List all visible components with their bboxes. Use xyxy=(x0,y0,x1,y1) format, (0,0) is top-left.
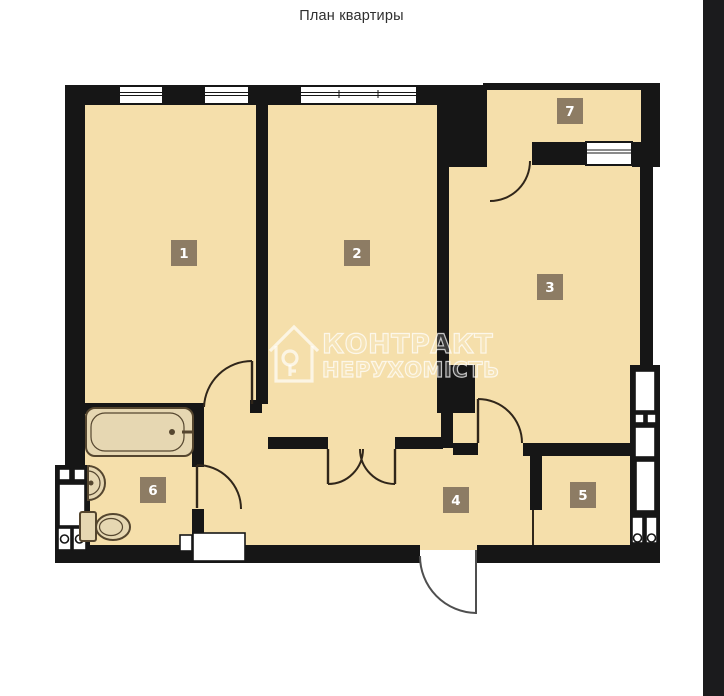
svg-text:1: 1 xyxy=(179,246,188,262)
room-label-6: 6 xyxy=(140,477,166,503)
room-label-4: 4 xyxy=(443,487,469,513)
svg-text:7: 7 xyxy=(565,104,574,120)
window xyxy=(119,86,163,104)
wall-segment xyxy=(249,85,300,105)
room-label-1: 1 xyxy=(171,240,197,266)
svg-text:3: 3 xyxy=(545,280,554,296)
screenshot-page: План квартиры xyxy=(0,0,724,696)
floor-plan: 1 2 3 4 5 6 7 xyxy=(0,0,724,696)
room3-bottom-wall xyxy=(453,443,478,455)
svg-text:6: 6 xyxy=(148,483,157,499)
photo-edge-strip xyxy=(703,0,724,696)
niche-box xyxy=(180,535,192,551)
shaft-box xyxy=(635,371,655,411)
svg-text:4: 4 xyxy=(451,493,460,509)
wall-segment xyxy=(632,142,660,167)
room5-partition xyxy=(530,452,542,510)
wall-segment xyxy=(441,413,453,448)
room-label-3: 3 xyxy=(537,274,563,300)
bottom-wall xyxy=(477,545,660,563)
shaft-box xyxy=(74,469,85,480)
shaft-box xyxy=(635,427,655,457)
shaft-box xyxy=(59,469,70,480)
shaft-box xyxy=(635,414,644,423)
wall-segment xyxy=(437,105,487,167)
room2-bottom-wall xyxy=(268,437,328,449)
room1-room2-wall xyxy=(256,105,268,404)
wall-segment xyxy=(532,142,586,165)
svg-text:2: 2 xyxy=(352,246,361,262)
watermark-line1: КОНТРАКТ xyxy=(322,329,493,360)
shaft-box xyxy=(636,461,655,511)
window xyxy=(586,142,632,165)
niche-box xyxy=(193,533,245,561)
bathtub xyxy=(86,408,193,456)
window xyxy=(204,86,249,104)
entrance-door xyxy=(420,550,476,614)
window xyxy=(300,86,417,104)
room-label-5: 5 xyxy=(570,482,596,508)
room-label-2: 2 xyxy=(344,240,370,266)
watermark-line2: НЕРУХОМІСТЬ xyxy=(322,358,500,382)
room-label-7: 7 xyxy=(557,98,583,124)
right-wall xyxy=(640,165,653,368)
svg-text:5: 5 xyxy=(578,488,587,504)
shaft-box xyxy=(647,414,656,423)
toilet xyxy=(80,512,130,541)
room2-bottom-wall xyxy=(395,437,443,449)
wall-segment xyxy=(415,85,487,105)
wall-segment xyxy=(163,85,204,105)
balcony-top-wall xyxy=(483,83,660,90)
